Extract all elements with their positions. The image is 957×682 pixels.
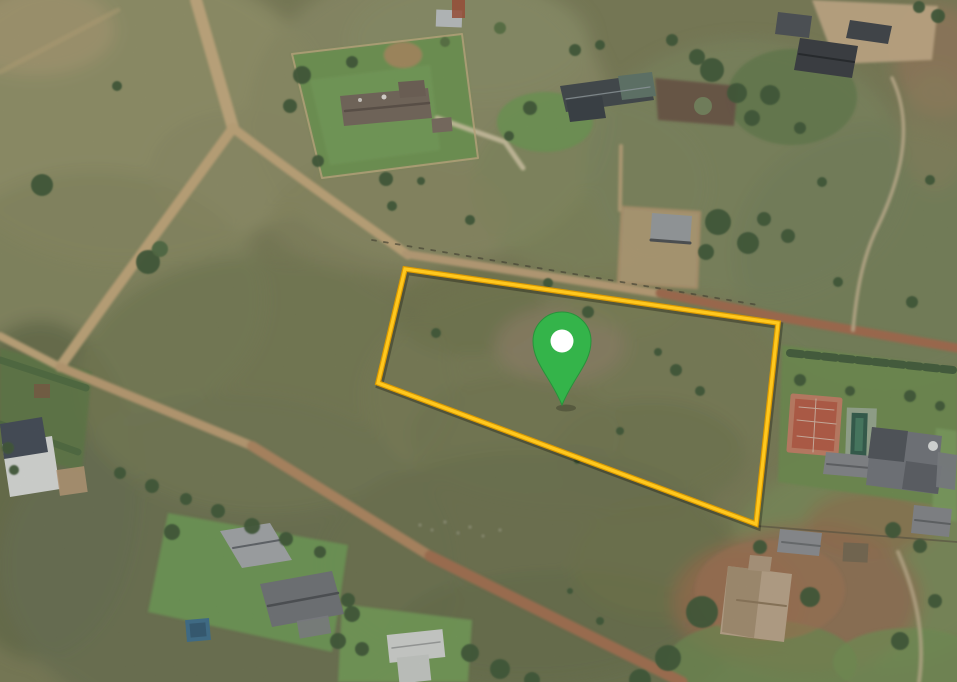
- pin-shadow: [556, 405, 576, 412]
- pin-center-dot: [551, 330, 574, 353]
- satellite-map[interactable]: [0, 0, 957, 682]
- grain-texture-light: [0, 0, 957, 682]
- map-viewport[interactable]: [0, 0, 957, 682]
